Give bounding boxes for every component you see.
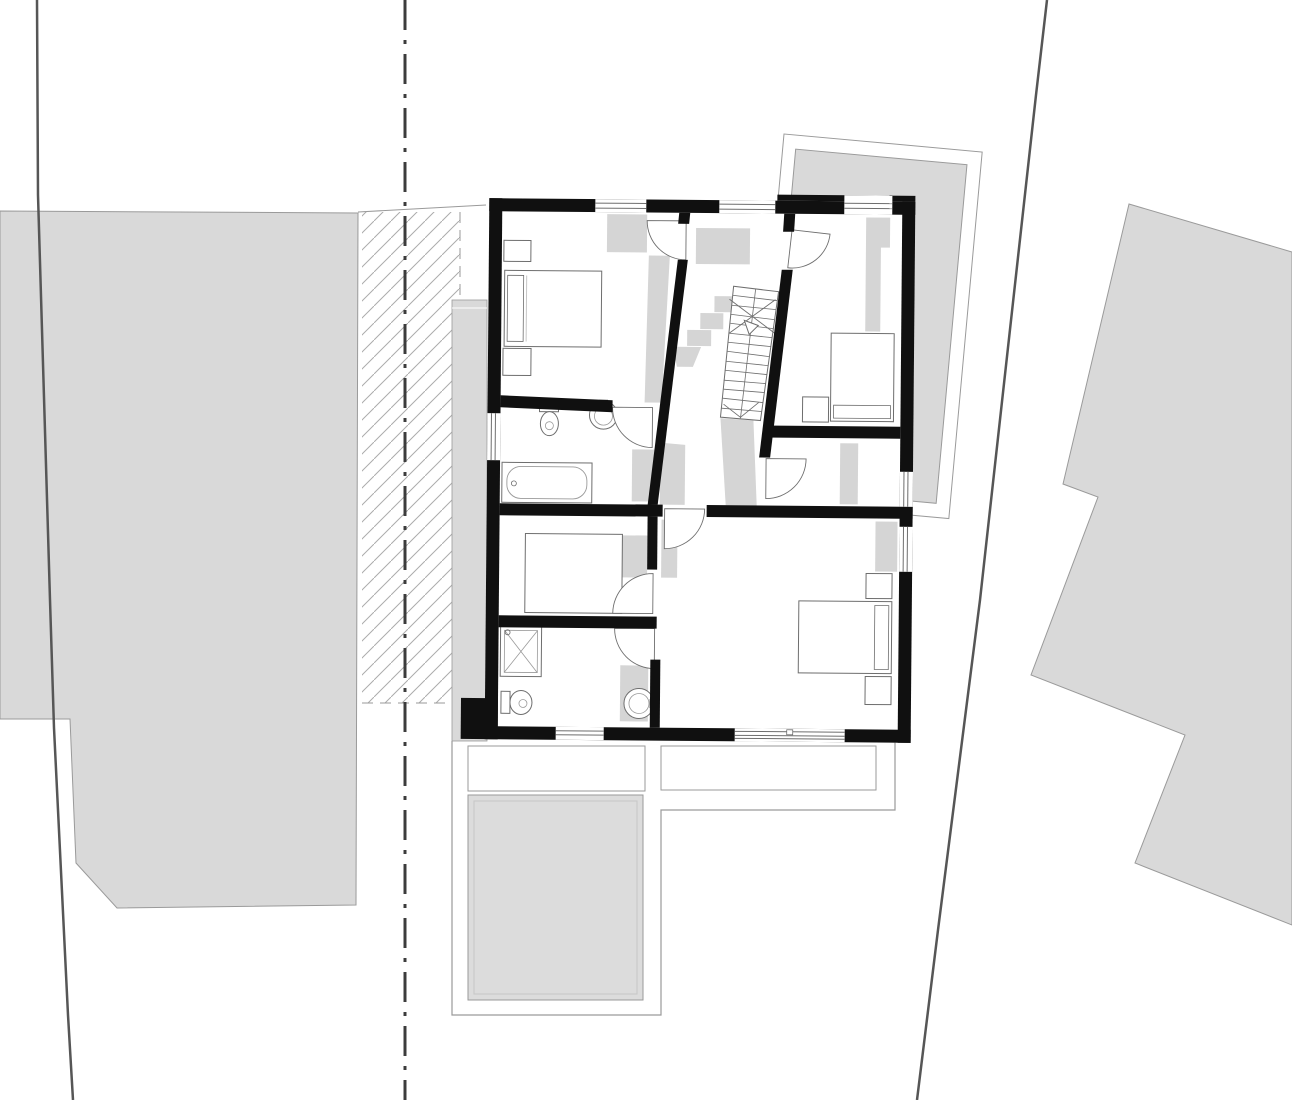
wall-interior xyxy=(707,505,913,519)
toilet-bowl xyxy=(510,690,532,714)
wall-interior xyxy=(763,426,900,439)
bed-pillow xyxy=(507,275,524,341)
dresser xyxy=(504,240,531,261)
bed-pillow xyxy=(874,606,889,670)
wardrobe xyxy=(525,533,623,613)
nightstand xyxy=(866,573,892,598)
window xyxy=(900,472,913,507)
nightstand xyxy=(865,676,891,704)
nightstand xyxy=(802,397,828,422)
sliding-door-handle xyxy=(787,730,793,735)
wall-interior xyxy=(499,615,657,628)
floor-plan xyxy=(461,192,916,743)
stair-cut-step xyxy=(714,296,732,312)
window xyxy=(487,413,500,460)
bed-pillow xyxy=(833,405,890,418)
shadow-hall-top xyxy=(696,228,750,264)
wall-interior xyxy=(783,214,795,232)
sink-basin xyxy=(624,688,654,718)
stair-cut-step xyxy=(687,330,711,346)
terrace-pool xyxy=(468,795,643,1000)
wall-interior xyxy=(500,503,663,516)
toilet-cistern xyxy=(501,691,510,713)
shadow-bedroom3-right xyxy=(875,522,897,572)
wall-interior xyxy=(678,213,690,224)
lower-floor-strip xyxy=(452,300,487,741)
wall-interior xyxy=(647,517,657,570)
wall-corner-block xyxy=(461,698,498,739)
right-neighbor-building xyxy=(1031,204,1292,925)
terrace-deck-right xyxy=(661,746,876,790)
bed-line xyxy=(526,275,527,341)
stair-cut-step xyxy=(700,313,723,329)
left-neighbor-building xyxy=(0,211,358,908)
site-plan-page xyxy=(0,0,1292,1100)
toilet-bowl xyxy=(540,412,558,436)
window xyxy=(719,200,775,213)
terrace-deck-left xyxy=(468,746,645,791)
nightstand xyxy=(503,348,531,375)
shadow-dressing-wall xyxy=(622,535,647,577)
window xyxy=(595,199,646,212)
window xyxy=(899,527,912,572)
window xyxy=(844,195,892,214)
shadow-vestibule xyxy=(840,443,859,504)
shadow-stair-band xyxy=(720,418,758,505)
shadow-bedroom1-window xyxy=(607,214,647,252)
site-plan-drawing xyxy=(0,0,1292,1100)
wall-interior xyxy=(650,660,661,728)
hatch-top-line xyxy=(358,205,486,212)
window xyxy=(556,727,604,740)
setback-hatch-area xyxy=(362,212,460,703)
